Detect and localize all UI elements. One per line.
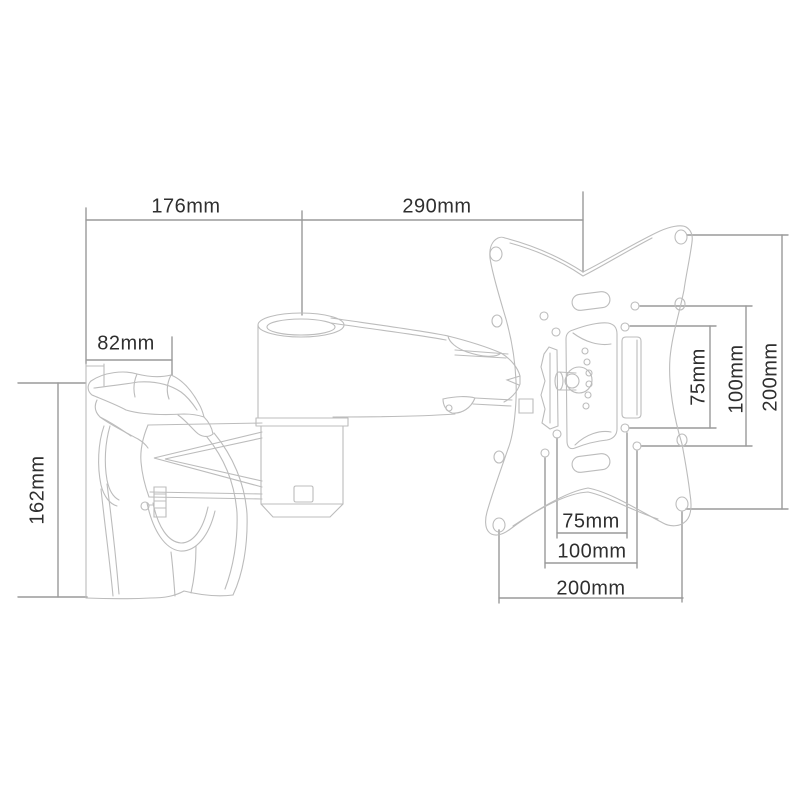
dimension-label-vesa-horizontal-100: 100mm — [557, 541, 626, 564]
dimension-label-vesa-horizontal-75: 75mm — [562, 511, 620, 534]
dimension-lines — [18, 192, 788, 603]
vesa-plate-drawing — [486, 226, 693, 535]
dimension-label-vesa-vertical-100: 100mm — [726, 344, 749, 413]
swivel-arm-drawing — [256, 313, 520, 517]
dimension-label-vesa-vertical-75: 75mm — [688, 348, 711, 406]
dimension-label-plate-reach: 290mm — [402, 196, 471, 219]
dimension-label-clamp-depth: 82mm — [97, 333, 155, 356]
dimension-label-bracket-height: 162mm — [27, 455, 50, 524]
wall-bracket-drawing — [86, 364, 262, 599]
technical-drawing-canvas: 176mm 290mm 82mm 162mm 75mm 100mm 200mm … — [0, 0, 800, 800]
dimension-label-vesa-horizontal-200: 200mm — [556, 578, 625, 601]
wall-mount-diagram — [0, 0, 800, 800]
tilt-hinge-drawing — [519, 323, 641, 449]
dimension-label-arm-depth: 176mm — [151, 196, 220, 219]
dimension-label-vesa-vertical-200: 200mm — [760, 342, 783, 411]
